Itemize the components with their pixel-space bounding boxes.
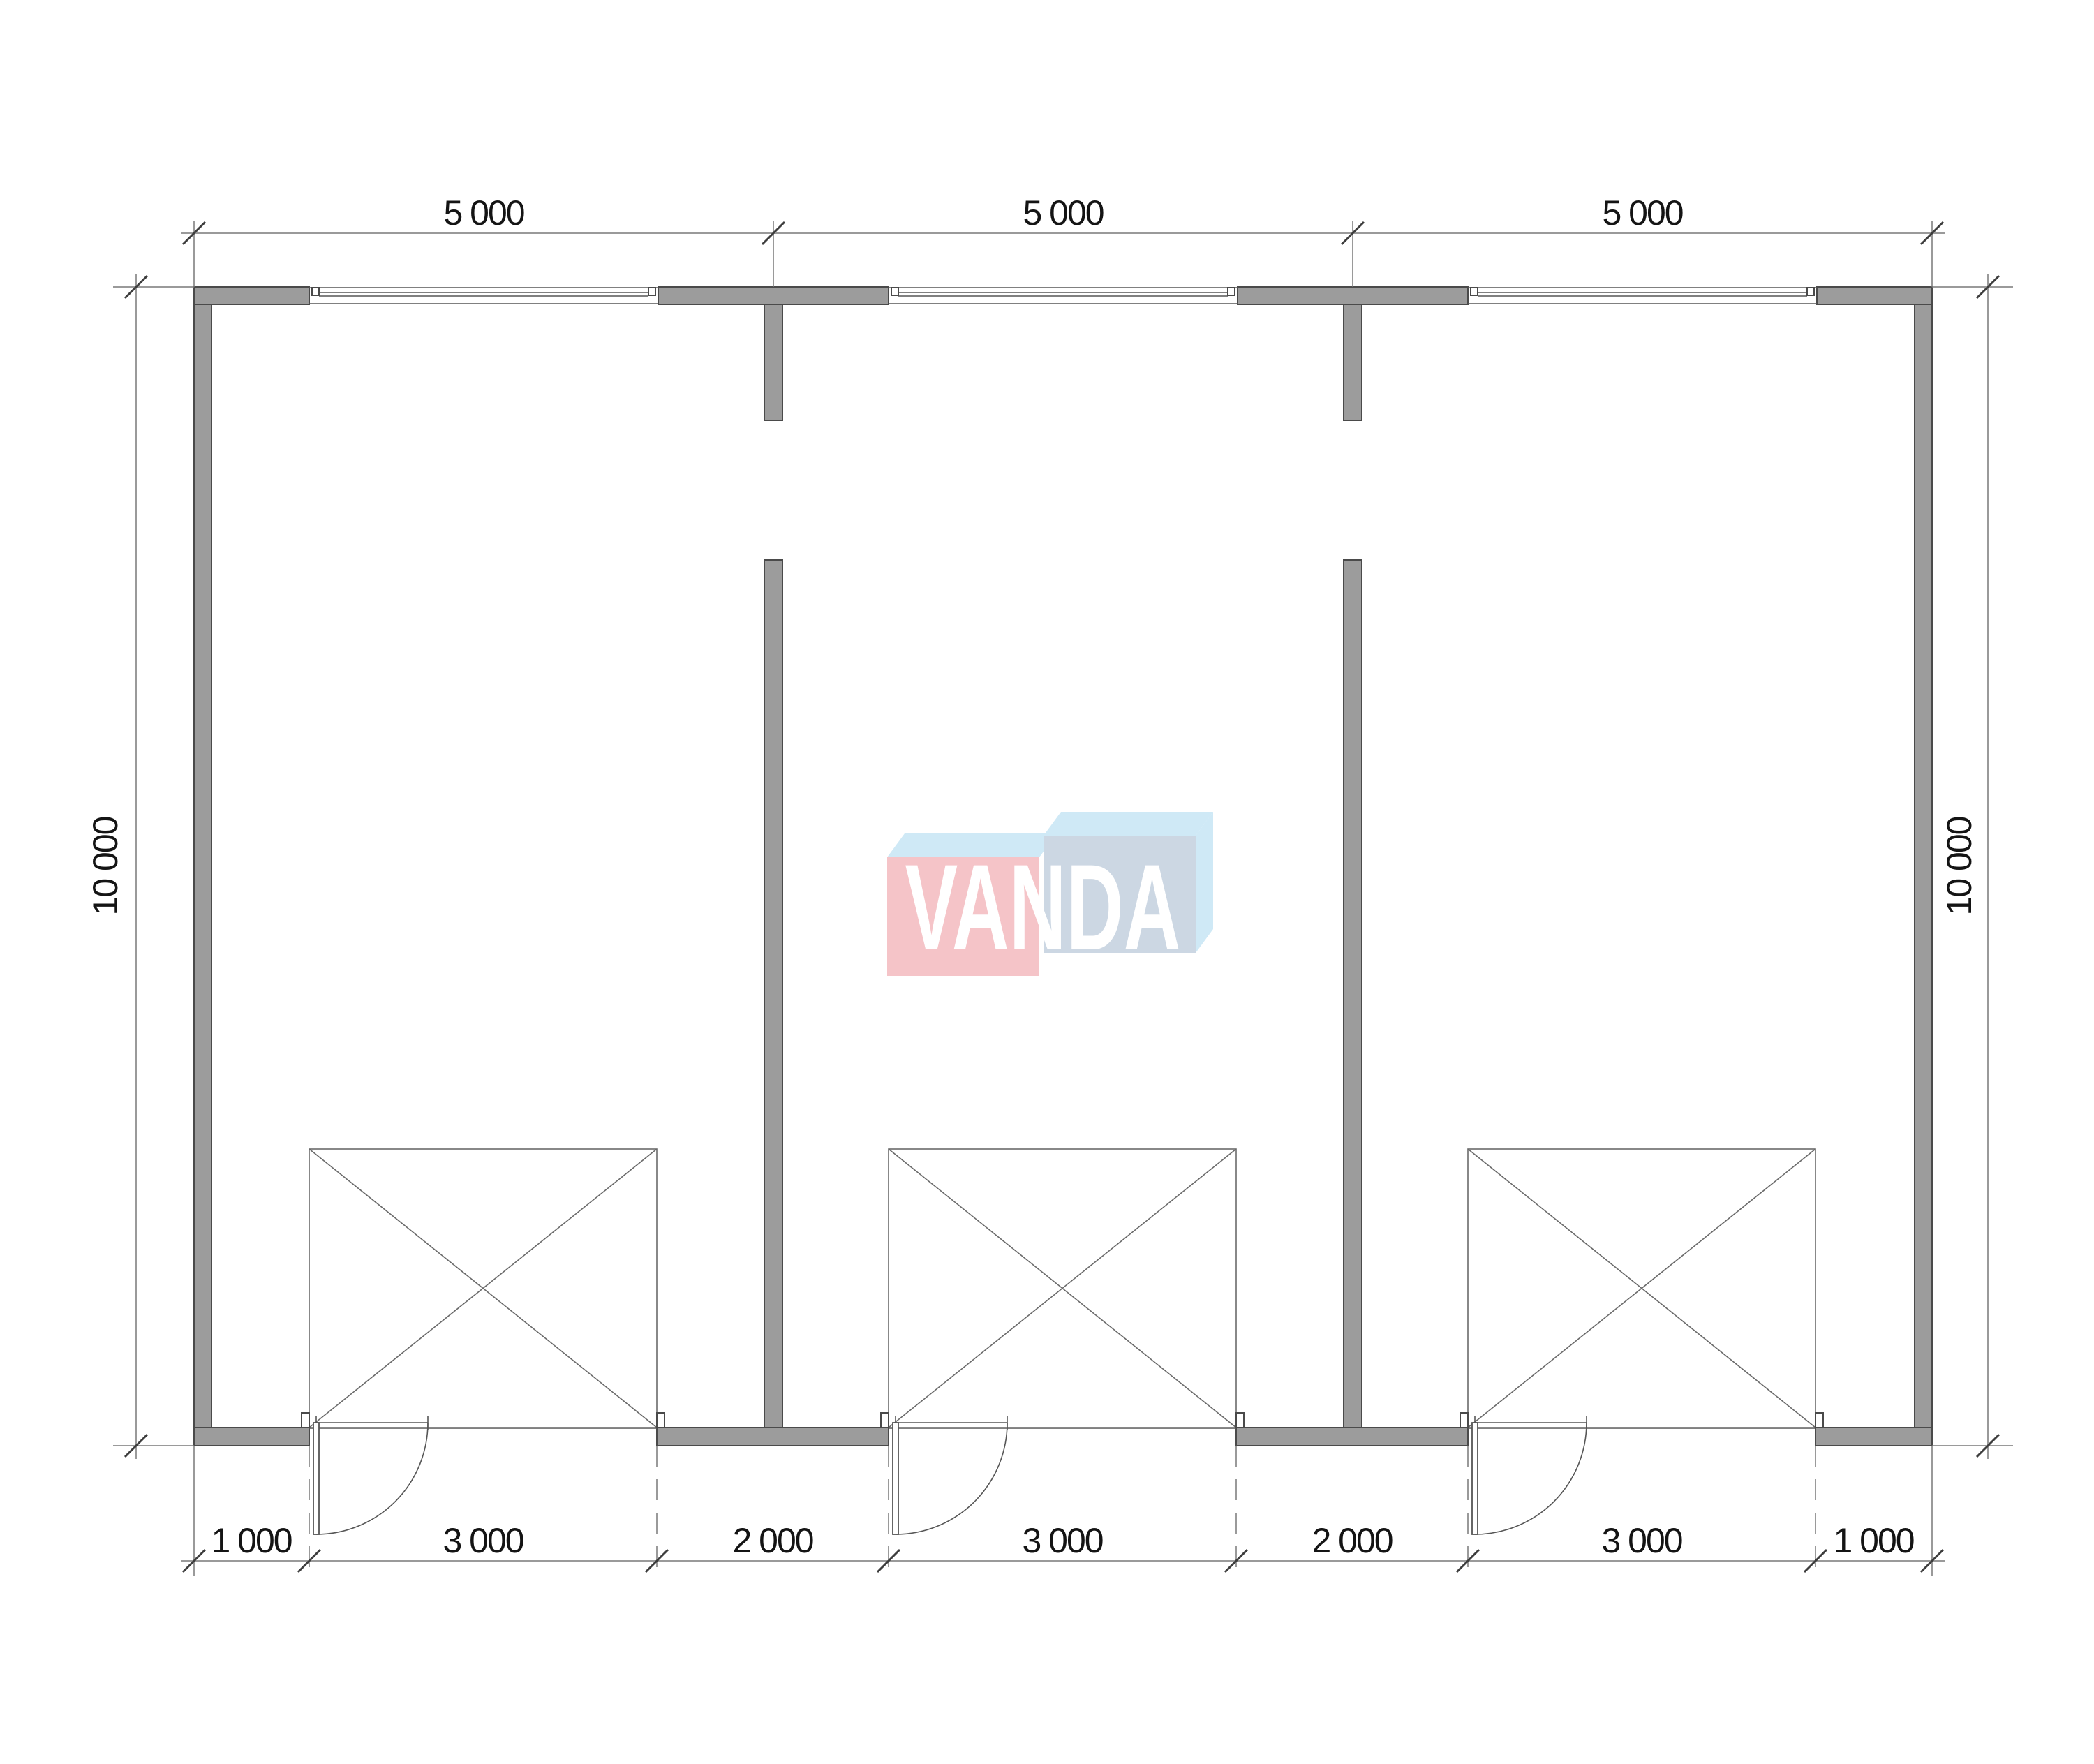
door-jamb-right (657, 1413, 664, 1428)
dimension-label-bottom-3: 2 000 (732, 1521, 812, 1560)
vanda-watermark: VANDA (887, 812, 1213, 976)
floor-plan-page: 5 000 5 000 5 000 1 000 3 000 2 000 3 00… (0, 0, 2094, 1764)
opening-cross-marker-1 (309, 1149, 657, 1428)
wall-bottom-segment-3 (1236, 1428, 1468, 1446)
dimension-label-bottom-4: 3 000 (1022, 1521, 1102, 1560)
door-2 (881, 1413, 1244, 1534)
dimension-bottom: 1 000 3 000 2 000 3 000 2 000 3 000 1 00… (181, 1446, 1945, 1576)
door-jamb-right (1815, 1413, 1823, 1428)
logo-cube-right-top-face (1044, 812, 1213, 836)
window-jamb-right (1807, 288, 1814, 295)
door-3 (1460, 1413, 1823, 1534)
dimension-label-right: 10 000 (1940, 817, 1979, 915)
door-swing-arc (316, 1423, 428, 1534)
window-2 (889, 288, 1238, 304)
dimension-label-left: 10 000 (86, 817, 125, 915)
logo-cube-right-side-face (1196, 812, 1213, 953)
wall-top-segment-4 (1817, 287, 1932, 304)
wall-top-segment-1 (194, 287, 309, 304)
dimension-right: 10 000 (1932, 274, 2013, 1459)
wall-bottom-segment-2 (657, 1428, 889, 1446)
floor-plan-canvas: 5 000 5 000 5 000 1 000 3 000 2 000 3 00… (0, 0, 2094, 1764)
wall-bottom-segment-1 (194, 1428, 309, 1446)
door-leaf (893, 1423, 898, 1534)
dimension-top: 5 000 5 000 5 000 (181, 193, 1945, 287)
dimension-label-bottom-2: 3 000 (443, 1521, 523, 1560)
door-jamb-left (881, 1413, 889, 1428)
door-jamb-left (302, 1413, 309, 1428)
dimension-left: 10 000 (86, 274, 194, 1459)
window-jamb-right (1228, 288, 1235, 295)
window-jamb-left (312, 288, 319, 295)
door-leaf (1472, 1423, 1478, 1534)
door-1 (302, 1413, 664, 1534)
window-3 (1468, 288, 1817, 304)
door-jamb-right (1236, 1413, 1244, 1428)
wall-top-segment-2 (658, 287, 889, 304)
dimension-label-top-3: 5 000 (1602, 193, 1682, 232)
window-jamb-left (1471, 288, 1478, 295)
opening-cross-marker-2 (889, 1149, 1236, 1428)
dimension-label-bottom-7: 1 000 (1833, 1521, 1913, 1560)
opening-cross-marker-3 (1468, 1149, 1815, 1428)
dimension-label-top-1: 5 000 (443, 193, 523, 232)
wall-right (1915, 287, 1932, 1446)
door-swing-arc (1475, 1423, 1587, 1534)
dimension-label-top-2: 5 000 (1023, 193, 1103, 232)
partition-1-lower (764, 560, 782, 1428)
wall-top-segment-3 (1238, 287, 1468, 304)
window-1 (309, 288, 658, 304)
window-jamb-right (648, 288, 655, 295)
partition-1-upper-stub (764, 304, 782, 420)
logo-wordmark: VANDA (905, 840, 1181, 976)
window-jamb-left (891, 288, 898, 295)
door-jamb-left (1460, 1413, 1468, 1428)
dimension-label-bottom-5: 2 000 (1312, 1521, 1392, 1560)
wall-left (194, 287, 211, 1446)
wall-bottom-segment-4 (1815, 1428, 1932, 1446)
dimension-label-bottom-6: 3 000 (1601, 1521, 1681, 1560)
door-leaf (313, 1423, 319, 1534)
partition-2-upper-stub (1344, 304, 1362, 420)
door-swing-arc (896, 1423, 1007, 1534)
dimension-label-bottom-1: 1 000 (211, 1521, 291, 1560)
partition-2-lower (1344, 560, 1362, 1428)
